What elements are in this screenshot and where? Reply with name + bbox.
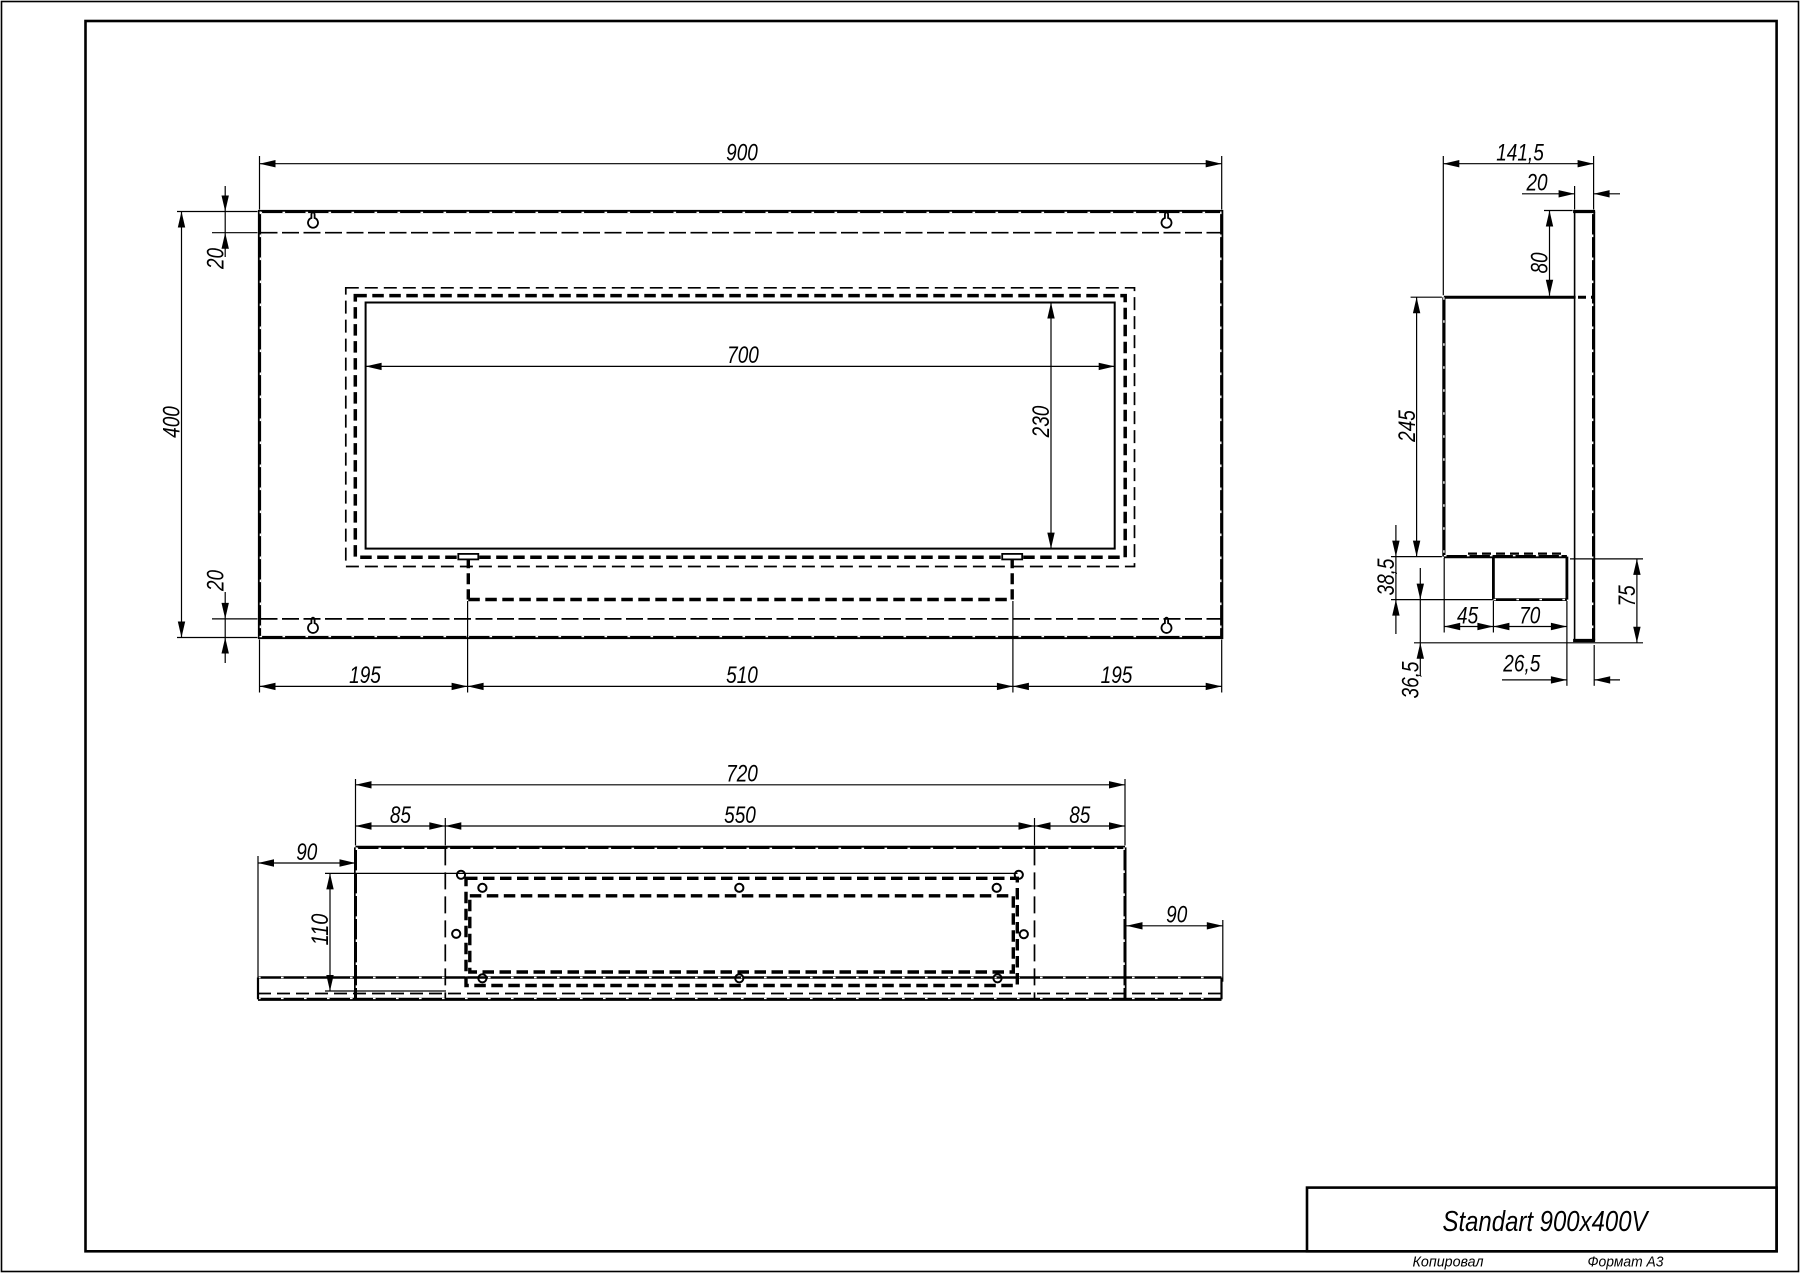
svg-text:45: 45 xyxy=(1457,602,1479,629)
svg-text:510: 510 xyxy=(726,662,758,689)
svg-text:80: 80 xyxy=(1527,252,1554,274)
svg-text:245: 245 xyxy=(1394,410,1421,443)
svg-text:20: 20 xyxy=(1526,170,1548,197)
svg-text:195: 195 xyxy=(1101,662,1133,689)
svg-text:720: 720 xyxy=(726,761,758,788)
svg-text:Формат А3: Формат А3 xyxy=(1588,1254,1665,1271)
svg-text:85: 85 xyxy=(1069,802,1091,829)
svg-text:Standart 900x400V: Standart 900x400V xyxy=(1443,1206,1650,1238)
svg-text:550: 550 xyxy=(724,802,756,829)
svg-text:900: 900 xyxy=(726,140,758,167)
svg-text:70: 70 xyxy=(1519,602,1541,629)
svg-text:230: 230 xyxy=(1028,405,1055,438)
svg-text:90: 90 xyxy=(296,839,318,866)
svg-text:38,5: 38,5 xyxy=(1373,558,1400,596)
svg-text:195: 195 xyxy=(349,662,381,689)
svg-text:20: 20 xyxy=(202,569,229,591)
svg-text:36,5: 36,5 xyxy=(1398,661,1425,699)
svg-text:400: 400 xyxy=(159,406,186,438)
svg-text:75: 75 xyxy=(1614,585,1641,607)
svg-text:Копировал: Копировал xyxy=(1413,1254,1485,1271)
svg-text:26,5: 26,5 xyxy=(1503,651,1541,678)
svg-text:85: 85 xyxy=(390,802,412,829)
svg-text:90: 90 xyxy=(1166,902,1188,929)
svg-text:700: 700 xyxy=(727,342,759,369)
svg-text:141,5: 141,5 xyxy=(1496,140,1544,167)
svg-text:20: 20 xyxy=(202,247,229,269)
svg-text:110: 110 xyxy=(307,913,334,945)
